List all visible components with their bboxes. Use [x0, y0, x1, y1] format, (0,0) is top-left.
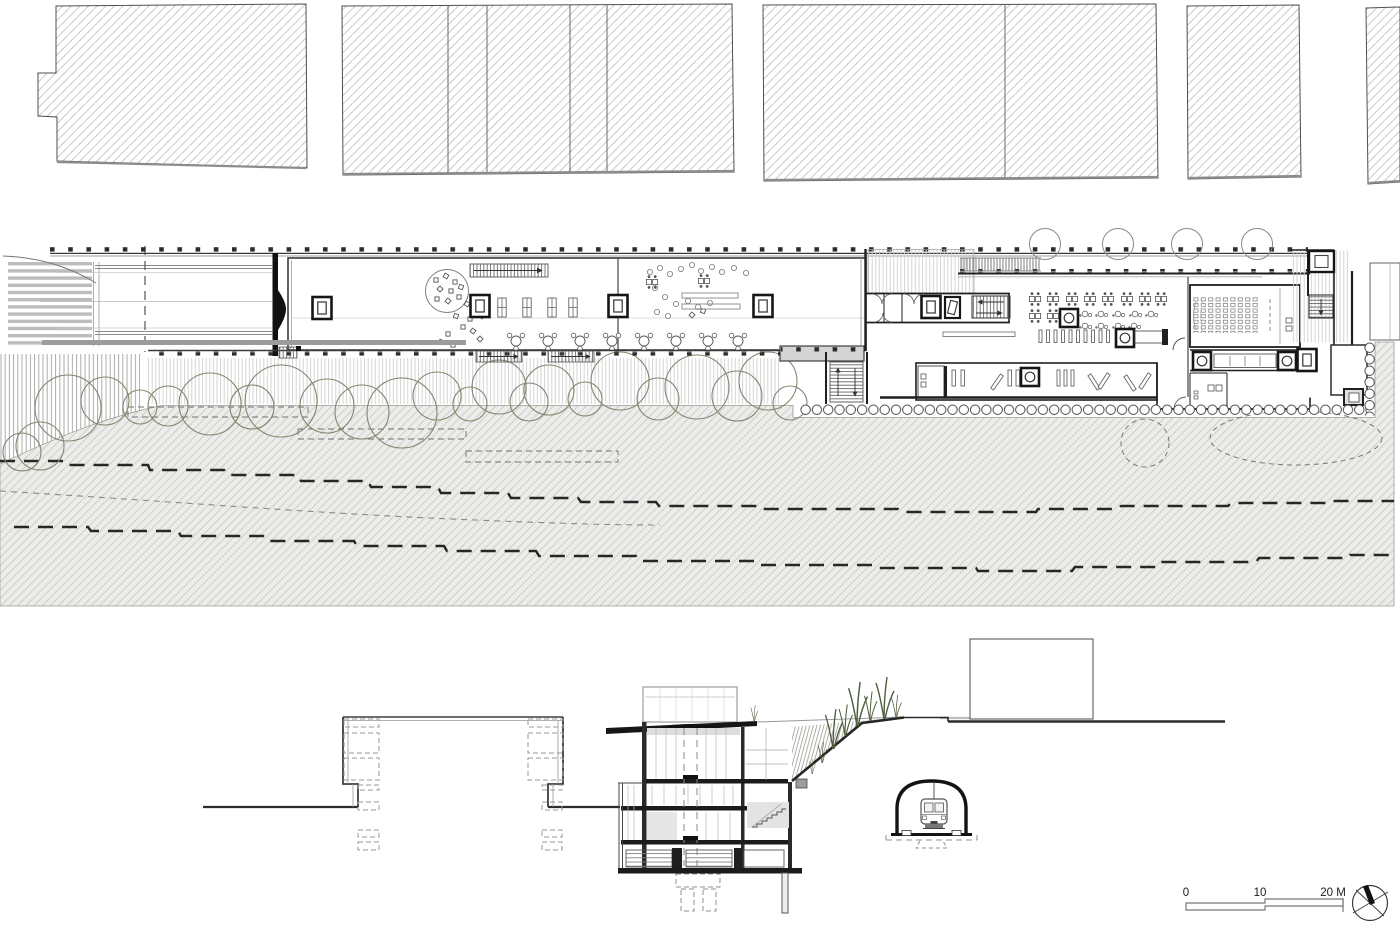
stair-small-3 — [548, 351, 594, 362]
auditorium — [1190, 285, 1300, 347]
lounge-clusters — [1079, 311, 1157, 329]
stair-upper — [470, 264, 548, 277]
round-column — [1278, 352, 1296, 370]
ramp-stripes — [868, 250, 974, 294]
cafe-tables — [1029, 292, 1166, 323]
paving-stripes-terrace — [148, 358, 780, 404]
metro-tunnel — [886, 781, 977, 848]
track-lines — [95, 266, 272, 335]
city-block-3 — [763, 4, 1158, 181]
station-canopy — [50, 247, 1308, 256]
platform-ladder — [8, 262, 92, 346]
portal-hidden-piers — [344, 719, 563, 850]
section-stair — [747, 802, 789, 828]
door-swing — [1173, 338, 1185, 350]
wc-fixture — [945, 297, 960, 318]
architectural-drawing-sheet: 0 10 20 M — [0, 0, 1400, 930]
terrace-block — [796, 779, 807, 788]
round-column — [1060, 309, 1078, 327]
canopy-ticks — [50, 247, 1308, 252]
east-wing — [780, 249, 1400, 409]
column — [922, 296, 941, 318]
street-trees — [1030, 229, 1273, 260]
north-arrow-icon — [1353, 885, 1389, 921]
adjacent-building-elevation — [970, 639, 1093, 719]
stair-small-2 — [476, 351, 522, 362]
column — [1298, 349, 1317, 371]
city-block-1 — [38, 4, 307, 168]
green-slope — [751, 677, 904, 781]
portal-structure — [343, 717, 563, 807]
drawing-canvas: 0 10 20 M — [0, 0, 1400, 930]
east-end — [1291, 250, 1367, 405]
adjacent-parcel — [1370, 263, 1400, 340]
elevator-shaft — [684, 728, 697, 866]
scale-bar-shape — [1186, 899, 1343, 910]
stair-east-1 — [972, 296, 1010, 318]
park-ground — [0, 342, 1394, 606]
display-bars — [1039, 330, 1110, 343]
bench-terrace — [943, 332, 1015, 337]
cobble-edge — [800, 404, 1368, 416]
stair-small-1 — [279, 347, 297, 358]
scale-label-20m: 20 M — [1320, 887, 1346, 899]
city-blocks — [38, 4, 1400, 184]
railway-area — [3, 246, 272, 352]
cobble-edge-vertical — [1364, 342, 1375, 416]
terrace-canopy — [780, 346, 864, 361]
comb-edge — [960, 258, 1041, 271]
scale-bar: 0 10 20 M — [1183, 887, 1346, 912]
city-block-5 — [1366, 7, 1400, 184]
round-column — [1116, 329, 1134, 347]
counter — [1135, 331, 1165, 343]
city-block-2 — [342, 4, 734, 175]
door-swings — [872, 294, 924, 322]
round-column — [1021, 368, 1039, 386]
entrance-wall-bulge — [278, 290, 286, 330]
scale-label-0: 0 — [1183, 887, 1189, 899]
scale-label-10: 10 — [1254, 887, 1267, 899]
city-block-4 — [1187, 5, 1301, 179]
basement-louvers — [626, 848, 784, 869]
round-column — [1193, 352, 1211, 370]
stair-east-2 — [1309, 295, 1333, 318]
foundation-piles — [676, 873, 788, 913]
platform-edge-band — [42, 340, 466, 345]
cross-section — [203, 639, 1225, 913]
